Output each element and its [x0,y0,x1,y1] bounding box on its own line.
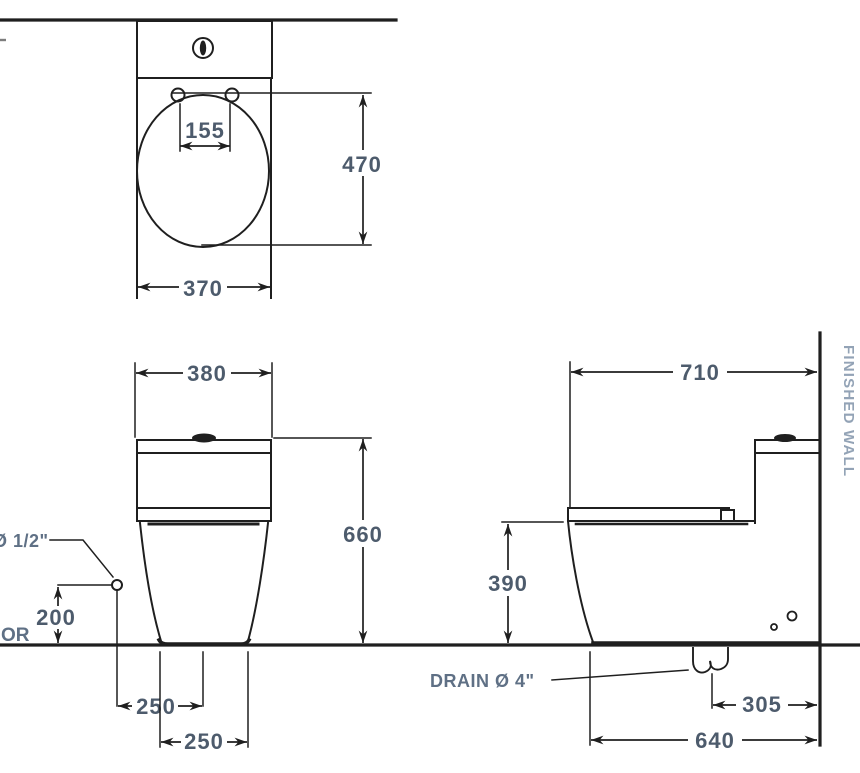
dim-value-305: 305 [742,692,782,717]
dim-value-470: 470 [342,152,382,177]
finished-wall-label: FINISHED WALL [840,345,857,477]
water-supply-callout: Ø 1/2" [0,531,122,590]
dimension-seat-height: 390 [482,522,563,643]
bowl-front-curve [568,521,593,642]
pedestal-left-edge [140,523,161,641]
drain-label: DRAIN Ø 4" [430,671,535,691]
dimension-hinge-spacing: 155 [180,104,230,151]
dimension-drain-offset: 305 [712,674,817,717]
toilet-dimension-drawing: 155 470 370 380 [0,0,860,773]
side-view: FINISHED WALL 710 390 [430,333,857,753]
dim-value-250-base: 250 [184,729,224,754]
dim-value-250-offset: 250 [136,694,176,719]
drain-trap-outline [693,648,728,673]
flush-button-slot [200,41,206,56]
supply-point [112,580,122,590]
pedestal-base-front [159,640,249,644]
leader-line [552,670,688,680]
seat-hinge-right [226,89,239,102]
pedestal-right-edge [248,523,268,641]
dim-value-380: 380 [187,361,227,386]
drawing-canvas: 155 470 370 380 [0,0,860,773]
floor-label-partial: OR [1,625,30,646]
dimension-tank-width: 380 [135,361,272,437]
dimension-depth: 710 [570,360,817,507]
dimension-base-width: 250 [161,729,247,754]
flush-button-front [192,434,216,443]
seat-hinge-side [721,510,734,521]
dimension-supply-height: 200 [32,587,79,643]
supply-label: Ø 1/2" [0,531,49,551]
fixing-hole-large [788,612,797,621]
dim-value-660: 660 [343,522,383,547]
dim-value-390: 390 [488,571,528,596]
plan-view: 155 470 370 [0,20,396,301]
dim-value-370: 370 [183,276,223,301]
dim-value-710: 710 [680,360,720,385]
drain-outlet: DRAIN Ø 4" [430,648,728,691]
front-view: 380 660 Ø 1/2" 200 OR [0,361,389,754]
leader-line [50,540,113,577]
dimension-width: 370 [138,276,270,301]
dim-value-155: 155 [185,118,225,143]
dim-value-640: 640 [695,728,735,753]
dimension-overall-height: 660 [274,438,389,643]
fixing-hole-small [771,624,777,630]
dim-value-200: 200 [36,605,76,630]
